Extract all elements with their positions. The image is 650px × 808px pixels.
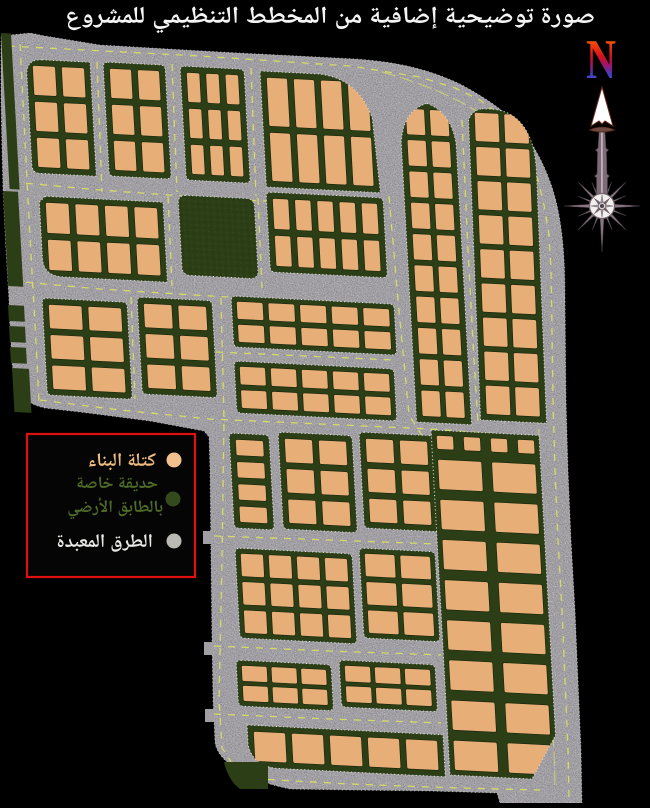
svg-text:N: N [586,29,616,91]
